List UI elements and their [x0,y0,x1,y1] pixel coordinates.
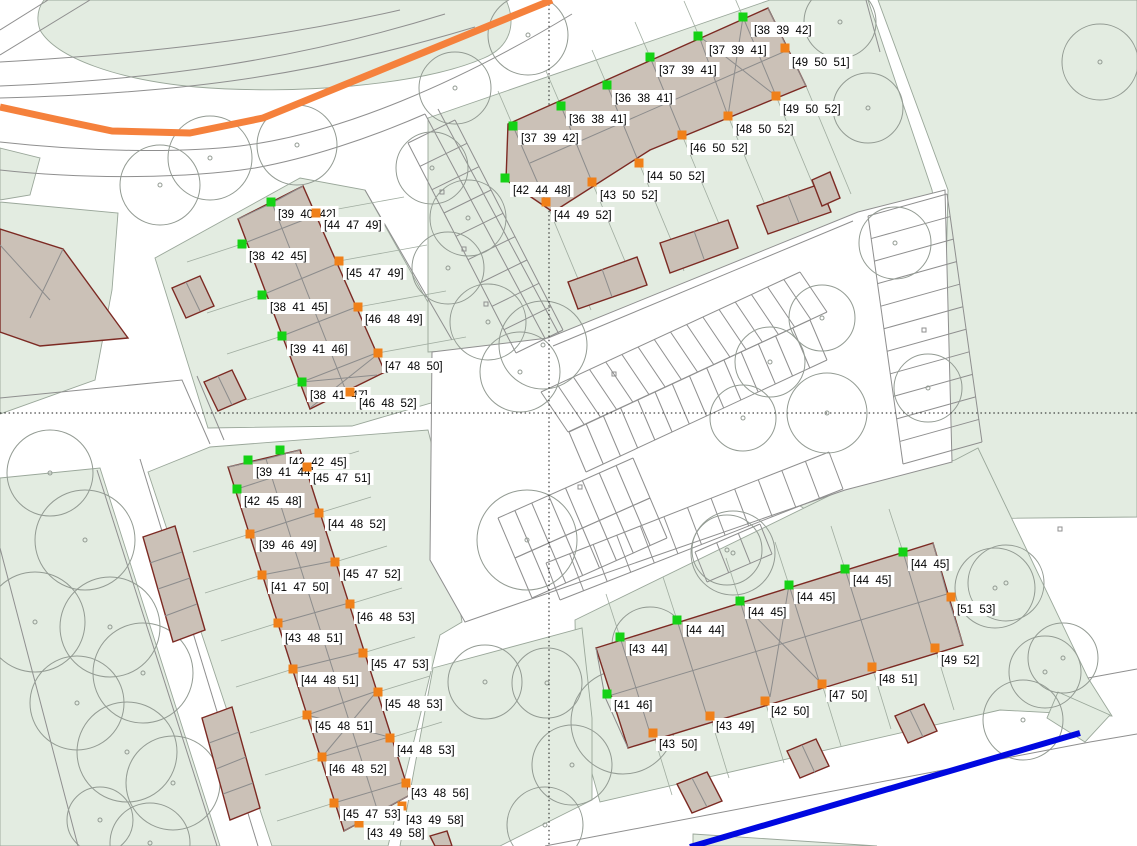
orange-corner-point[interactable] [354,303,363,312]
green-corner-point[interactable] [603,81,612,90]
green-corner-point[interactable] [646,53,655,62]
corner-label: [44 48 51] [301,675,359,687]
corner-label: [43 50] [659,739,697,751]
orange-corner-point[interactable] [678,131,687,140]
corner-label: [45 47 51] [313,473,371,485]
orange-corner-point[interactable] [315,509,324,518]
corner-label: [42 50] [771,706,809,718]
corner-label: [37 39 41] [709,45,767,57]
corner-label: [46 48 53] [357,612,415,624]
orange-corner-point[interactable] [331,558,340,567]
green-corner-point[interactable] [736,597,745,606]
corner-label: [44 44] [686,625,724,637]
orange-corner-point[interactable] [330,799,339,808]
green-corner-point[interactable] [244,456,253,465]
corner-label: [44 49 52] [554,210,612,222]
corner-label: [46 48 52] [329,764,387,776]
orange-corner-point[interactable] [359,649,368,658]
green-corner-point[interactable] [258,291,267,300]
green-corner-point[interactable] [739,13,748,22]
green-corner-point[interactable] [841,565,850,574]
green-corner-point[interactable] [238,240,247,249]
orange-corner-point[interactable] [274,619,283,628]
orange-corner-point[interactable] [335,257,344,266]
orange-corner-point[interactable] [781,44,790,53]
green-corner-point[interactable] [298,378,307,387]
green-corner-point[interactable] [616,633,625,642]
corner-label: [43 49 58] [367,828,425,840]
corner-label: [45 47 52] [343,569,401,581]
orange-corner-point[interactable] [635,159,644,168]
tree [120,145,200,225]
corner-label: [39 41 46] [290,344,348,356]
corner-label: [46 48 52] [359,398,417,410]
corner-label: [42 45 48] [244,496,302,508]
orange-corner-point[interactable] [312,209,321,218]
orange-corner-point[interactable] [303,463,312,472]
orange-corner-point[interactable] [724,112,733,121]
corner-label: [41 46] [614,700,652,712]
corner-label: [43 49] [716,721,754,733]
corner-label: [43 48 51] [285,633,343,645]
green-corner-point[interactable] [233,485,242,494]
corner-label: [36 38 41] [615,93,673,105]
corner-label: [46 48 49] [365,314,423,326]
corner-label: [44 45] [748,607,786,619]
green-corner-point[interactable] [899,548,908,557]
corner-label: [44 48 53] [397,745,455,757]
corner-label: [45 48 53] [385,699,443,711]
corner-label: [47 48 50] [385,361,443,373]
orange-corner-point[interactable] [818,680,827,689]
corner-label: [49 50 51] [792,57,850,69]
orange-corner-point[interactable] [772,92,781,101]
corner-label: [44 45] [911,559,949,571]
corner-label: [37 39 42] [521,133,579,145]
corner-label: [36 38 41] [569,114,627,126]
corner-label: [41 47 50] [271,582,329,594]
corner-label: [49 52] [941,655,979,667]
corner-label: [43 48 56] [411,788,469,800]
green-corner-point[interactable] [603,690,612,699]
corner-label: [38 42 45] [249,251,307,263]
corner-label: [44 47 49] [324,220,382,232]
corner-label: [42 44 48] [513,185,571,197]
orange-corner-point[interactable] [868,663,877,672]
orange-corner-point[interactable] [346,600,355,609]
corner-label: [46 50 52] [690,143,748,155]
corner-label: [45 47 53] [371,659,429,671]
orange-corner-point[interactable] [318,753,327,762]
site-plan-viewport: [38 39 42][37 39 41][37 39 41][36 38 41]… [0,0,1137,846]
orange-corner-point[interactable] [761,697,770,706]
corner-label: [39 46 49] [259,540,317,552]
orange-corner-point[interactable] [303,711,312,720]
green-corner-point[interactable] [509,122,518,131]
green-corner-point[interactable] [694,32,703,41]
green-corner-point[interactable] [785,581,794,590]
orange-corner-point[interactable] [346,388,355,397]
green-corner-point[interactable] [501,174,510,183]
orange-corner-point[interactable] [706,712,715,721]
corner-label: [48 51] [879,674,917,686]
corner-label: [43 44] [629,644,667,656]
orange-corner-point[interactable] [588,178,597,187]
orange-corner-point[interactable] [542,198,551,207]
orange-corner-point[interactable] [402,779,411,788]
corner-label: [38 39 42] [754,25,812,37]
corner-label: [47 50] [829,690,867,702]
corner-label: [49 50 52] [783,104,841,116]
corner-label: [44 48 52] [328,519,386,531]
corner-label: [45 47 49] [346,268,404,280]
parcel-left-sliver [0,148,40,200]
green-corner-point[interactable] [278,332,287,341]
orange-corner-point[interactable] [386,734,395,743]
stall-mark [1058,527,1062,531]
orange-corner-point[interactable] [374,688,383,697]
orange-corner-point[interactable] [931,644,940,653]
orange-corner-point[interactable] [289,665,298,674]
green-corner-point[interactable] [673,616,682,625]
orange-corner-point[interactable] [246,530,255,539]
corner-label: [44 50 52] [647,171,705,183]
orange-corner-point[interactable] [258,571,267,580]
corner-label: [51 53] [957,604,995,616]
green-corner-point[interactable] [557,102,566,111]
corner-label: [37 39 41] [659,65,717,77]
orange-corner-point[interactable] [947,593,956,602]
corner-label: [48 50 52] [736,124,794,136]
site-plan-canvas: [38 39 42][37 39 41][37 39 41][36 38 41]… [0,0,1137,846]
orange-corner-point[interactable] [374,349,383,358]
green-corner-point[interactable] [267,198,276,207]
corner-label: [44 45] [797,592,835,604]
orange-corner-point[interactable] [649,729,658,738]
corner-label: [44 45] [853,575,891,587]
green-corner-point[interactable] [276,446,285,455]
corner-label: [45 47 53] [343,809,401,821]
corner-label: [43 50 52] [600,190,658,202]
corner-label: [38 41 45] [270,302,328,314]
corner-label: [45 48 51] [315,721,373,733]
